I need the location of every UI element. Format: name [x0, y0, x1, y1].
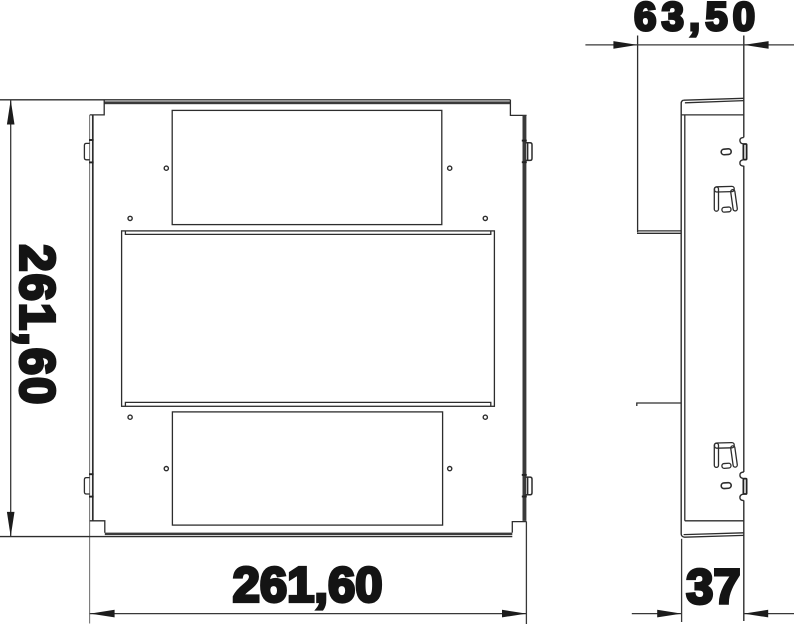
- svg-text:63,50: 63,50: [634, 0, 760, 39]
- svg-text:37: 37: [686, 560, 741, 614]
- svg-text:261,60: 261,60: [233, 559, 383, 613]
- svg-text:261,60: 261,60: [9, 244, 63, 406]
